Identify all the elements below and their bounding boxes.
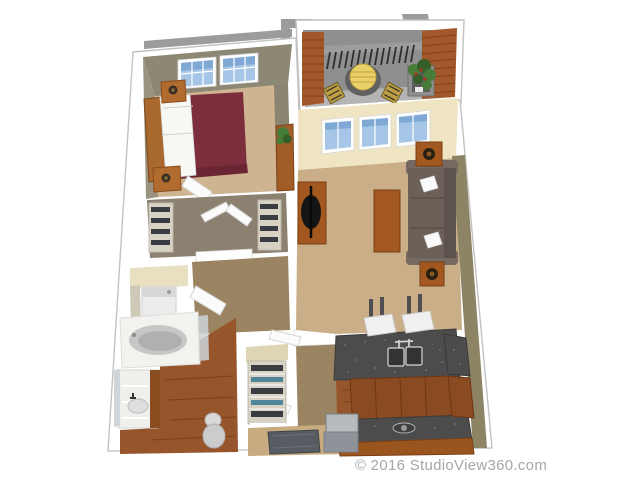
sofa [406, 160, 458, 265]
patio-table [350, 64, 376, 90]
kitchen-appliance [324, 414, 358, 452]
brick-pillar [302, 32, 324, 106]
end-table-with-lamp [420, 262, 444, 286]
closet-shelving-left [149, 203, 173, 252]
door-mat [268, 430, 320, 454]
coffee-table [374, 190, 400, 252]
tv-console-with-tv [298, 182, 326, 244]
floorplan-canvas [0, 0, 620, 487]
copyright-text: © 2016 StudioView360.com [342, 457, 560, 474]
living-window [322, 117, 354, 154]
living-window [359, 114, 391, 150]
living-window [396, 110, 430, 147]
bedroom [143, 44, 294, 202]
shower-glass [198, 315, 209, 361]
bathroom [114, 312, 238, 454]
floorplan-rendering: © 2016 StudioView360.com [0, 0, 620, 487]
end-table-with-lamp [416, 142, 442, 166]
closet-shelving-right [258, 200, 281, 250]
dresser-with-plant [276, 124, 294, 191]
mirror [114, 369, 120, 427]
nightstand-with-lamp [161, 80, 186, 103]
bedroom-window [220, 53, 258, 85]
linen-closet [246, 344, 288, 431]
nightstand-with-lamp [153, 166, 181, 192]
vanity-with-sink [118, 370, 160, 428]
bathtub [120, 312, 200, 368]
